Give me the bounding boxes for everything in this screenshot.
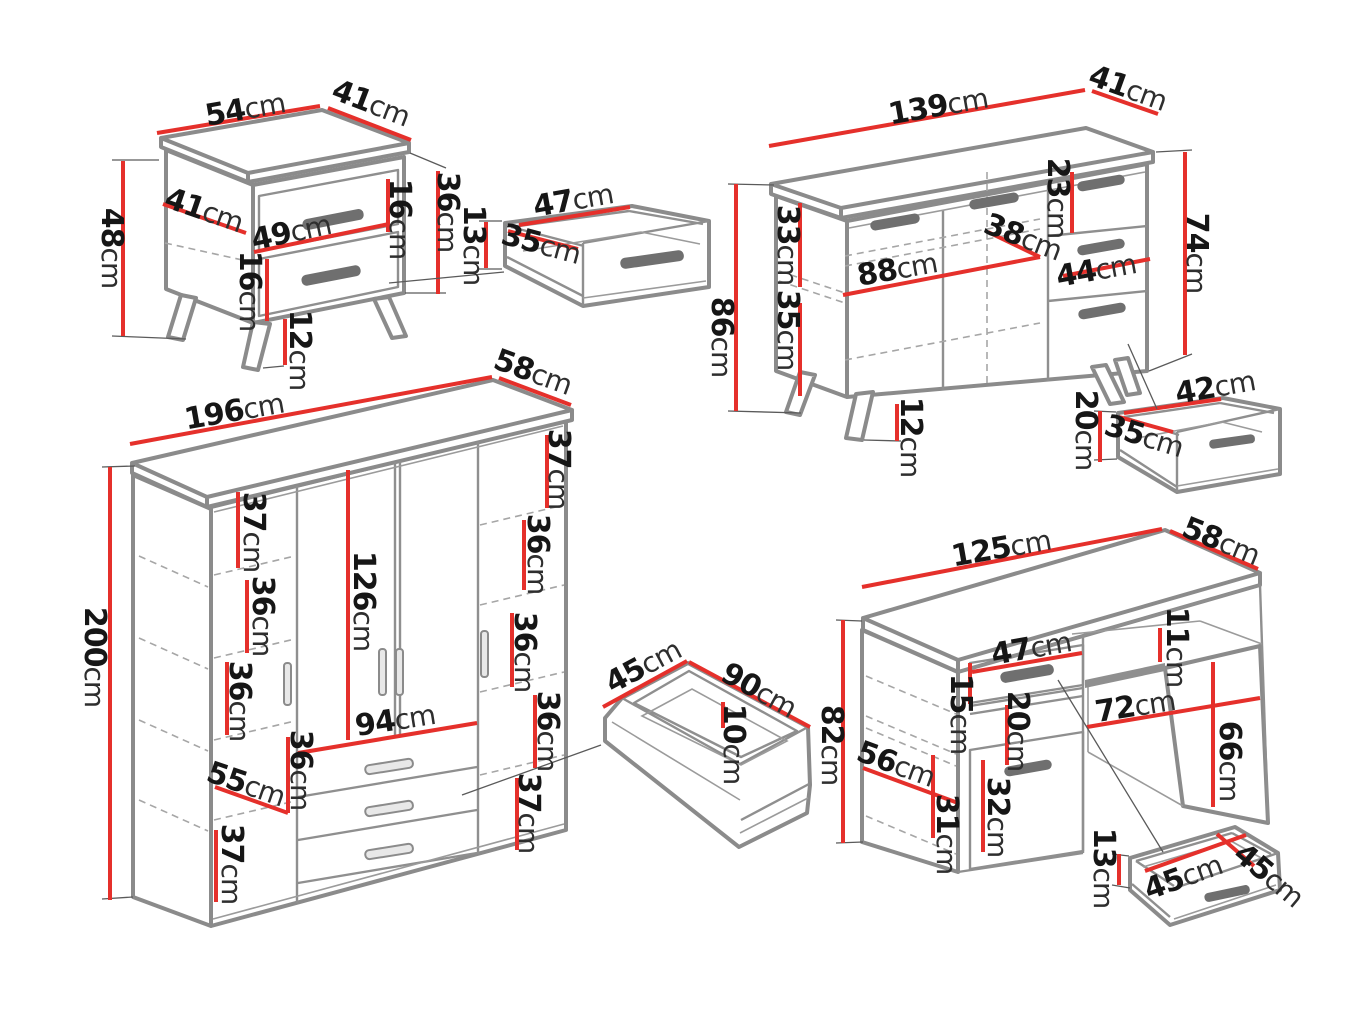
dim-wardrobe-left-1: 37cm xyxy=(237,492,272,572)
dim-desk-knee-height: 66cm xyxy=(1213,721,1248,801)
wardrobe-door-handle xyxy=(379,649,386,695)
dim-nightstand-top-drawer: 16cm xyxy=(383,179,418,259)
dim-sideboard-top-drawer: 23cm xyxy=(1041,158,1076,238)
dim-desk-height: 82cm xyxy=(815,705,850,785)
dim-sideboard-lower: 35cm xyxy=(771,290,806,370)
dim-wardrobe-height: 200cm xyxy=(78,607,113,707)
dim-desk-knee-width: 72cm xyxy=(1093,682,1178,729)
dim-wardrobe-left-3: 36cm xyxy=(223,661,258,741)
dim-sideboard-leg: 12cm xyxy=(894,397,929,477)
dim-wardrobe-right-4: 36cm xyxy=(531,691,566,771)
dim-drawer-flat-height: 10cm xyxy=(717,704,752,784)
dim-desk-niche: 20cm xyxy=(1001,691,1036,771)
dim-desk-side-section: 31cm xyxy=(930,794,965,874)
dim-sideboard-carcass: 74cm xyxy=(1180,213,1215,293)
wardrobe-door-handle xyxy=(284,663,291,705)
dim-drawer-b-height: 20cm xyxy=(1069,390,1104,470)
dim-nightstand-leg: 12cm xyxy=(283,310,318,390)
dim-nightstand-bottom-drawer: 16cm xyxy=(233,251,268,331)
dim-wardrobe-left-2: 36cm xyxy=(246,576,281,656)
dim-sideboard-depth: 41cm xyxy=(1084,58,1172,118)
dim-drawer-a-height: 13cm xyxy=(457,205,492,285)
dim-nightstand-height: 48cm xyxy=(95,208,130,288)
dim-sideboard-width: 139cm xyxy=(886,80,991,132)
dim-wardrobe-right-1: 37cm xyxy=(542,429,577,509)
diagram-canvas: 54cm 41cm 48cm 41cm 49cm 16cm 36cm 16cm … xyxy=(0,0,1364,1023)
dim-wardrobe-hanging: 126cm xyxy=(347,551,382,651)
dim-sideboard-height: 86cm xyxy=(705,297,740,377)
furniture-dimension-diagram: 54cm 41cm 48cm 41cm 49cm 16cm 36cm 16cm … xyxy=(0,0,1364,1023)
wardrobe-door-handle xyxy=(396,649,403,695)
dim-wardrobe-right-3: 36cm xyxy=(508,612,543,692)
desk-drawing xyxy=(836,529,1268,872)
dim-desk-shelf: 11cm xyxy=(1160,607,1195,687)
dim-desk-door-height: 32cm xyxy=(981,777,1016,857)
dim-desk-drawer-height: 15cm xyxy=(944,674,979,754)
wardrobe-door-handle xyxy=(481,631,488,677)
dim-sideboard-upper: 33cm xyxy=(771,205,806,285)
dim-drawer-c-height: 13cm xyxy=(1087,828,1122,908)
wardrobe-drawing xyxy=(102,377,572,926)
dim-wardrobe-right-2: 36cm xyxy=(521,514,556,594)
desk-keyboard-tray xyxy=(1085,663,1165,688)
dim-wardrobe-right-5: 37cm xyxy=(512,773,547,853)
dim-wardrobe-bottom-left: 37cm xyxy=(215,824,250,904)
dim-wardrobe-drawer-section: 36cm xyxy=(284,730,319,810)
